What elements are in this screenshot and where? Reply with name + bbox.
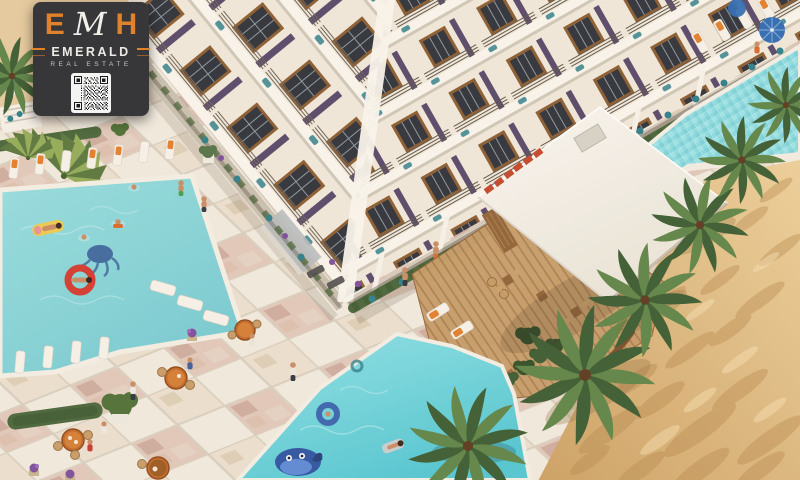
brand-monogram: E M H (45, 8, 137, 40)
resort-promo-render: E M H EMERALD REAL ESTATE (0, 0, 800, 480)
dash-left-icon (32, 48, 45, 56)
monogram-letter-h: H (116, 10, 138, 40)
brand-name-row: EMERALD (32, 45, 149, 59)
brand-badge: E M H EMERALD REAL ESTATE (33, 2, 149, 116)
monogram-letter-m: M (74, 8, 107, 40)
brand-name: EMERALD (51, 45, 130, 59)
dash-right-icon (137, 48, 150, 56)
brand-subtitle: REAL ESTATE (50, 61, 131, 68)
monogram-letter-e: E (45, 10, 65, 40)
qr-code-graphic (74, 76, 108, 110)
qr-code (71, 73, 111, 113)
